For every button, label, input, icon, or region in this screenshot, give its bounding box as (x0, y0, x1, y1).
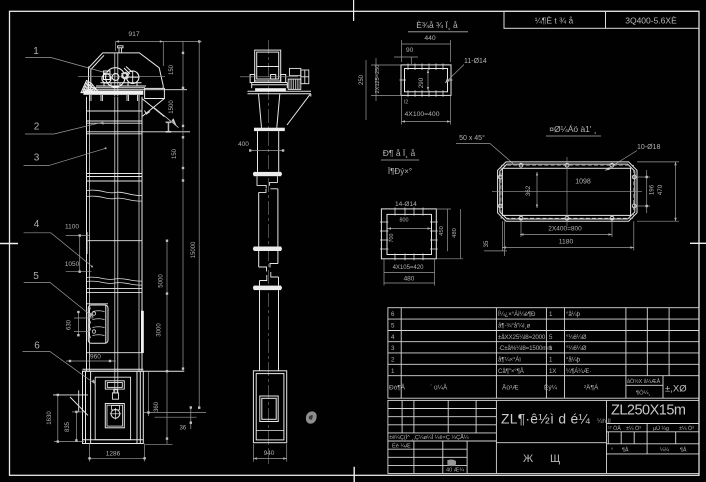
svg-text:å¶¼×°Áì: å¶¼×°Áì (498, 356, 521, 363)
svg-text:40 Æ¼: 40 Æ¼ (446, 468, 464, 474)
svg-text:1: 1 (33, 46, 39, 57)
svg-text:3Q400-5.6XÈ: 3Q400-5.6XÈ (625, 16, 677, 26)
svg-text:È¾å ¾ Ï¸ å: È¾å ¾ Ï¸ å (416, 20, 458, 30)
svg-text:1100: 1100 (65, 224, 79, 231)
svg-text:Í¼¿×°Áì¼è¶Ð: Í¼¿×°Áì¼è¶Ð (498, 311, 536, 318)
svg-text:·C±å%¼l8=1500mm: ·C±å%¼l8=1500mm (498, 345, 552, 352)
svg-text:²Ä¶Á: ²Ä¶Á (584, 383, 599, 392)
svg-text:14-Ø14: 14-Ø14 (395, 201, 417, 208)
svg-text:2X400=800: 2X400=800 (548, 226, 582, 233)
svg-text:2: 2 (34, 122, 40, 133)
svg-text:1X: 1X (549, 368, 556, 375)
svg-text:°: ° (611, 448, 613, 454)
svg-text:l2: l2 (404, 100, 408, 106)
svg-text:835: 835 (65, 421, 71, 432)
svg-text:196: 196 (649, 184, 656, 195)
svg-text:250: 250 (359, 74, 365, 85)
svg-text:1098: 1098 (575, 179, 591, 186)
svg-text:90: 90 (406, 47, 414, 54)
svg-text:11-Ø14: 11-Ø14 (464, 58, 487, 65)
svg-text:±¼ Ò³: ±¼ Ò³ (626, 425, 641, 432)
svg-text:¶Å: ¶Å (622, 447, 629, 454)
svg-text:400: 400 (238, 141, 249, 148)
svg-text:å¶-¾°å'¼ì¸ø: å¶-¾°å'¼ì¸ø (498, 323, 531, 330)
svg-text:3: 3 (34, 153, 40, 164)
svg-text:°å¼þ: °å¼þ (566, 311, 581, 318)
svg-text:5000: 5000 (159, 274, 165, 288)
svg-text:360: 360 (154, 401, 160, 412)
svg-text:4: 4 (34, 219, 40, 230)
svg-text:470: 470 (657, 184, 664, 195)
svg-text:¼h,ll: ¼h,ll (597, 418, 611, 425)
svg-text:5: 5 (33, 271, 39, 282)
svg-text:1050: 1050 (65, 261, 80, 268)
svg-text:¹² ÖÅ: ¹² ÖÅ (608, 425, 621, 432)
svg-text:°å¼þ: °å¼þ (566, 356, 581, 363)
svg-text:150: 150 (172, 148, 178, 159)
svg-text:Ж: Ж (523, 453, 533, 465)
svg-text:°¼6¼Ø: °¼6¼Ø (566, 345, 587, 352)
svg-text:917: 917 (128, 31, 140, 38)
svg-text:¼¼: ¼¼ (660, 448, 669, 454)
svg-text:1630: 1630 (47, 411, 53, 425)
svg-text:¶Å: ¶Å (680, 447, 687, 454)
svg-text:480: 480 (452, 228, 458, 238)
svg-text:960: 960 (90, 354, 101, 361)
svg-text:Ð¶ å Ï¸ å: Ð¶ å Ï¸ å (383, 148, 416, 158)
svg-text:10-Ø18: 10-Ø18 (637, 144, 660, 151)
svg-text:Щ: Щ (550, 453, 560, 465)
svg-text:±ê¼Ç(Ì^ ¸,Ç¼ø¼Î ¼ê×Ç ¼ÇÃ¼: ±ê¼Ç(Ì^ ¸,Ç¼ø¼Î ¼ê×Ç ¼ÇÃ¼ (389, 434, 469, 441)
svg-text:Cå¶"×°¶Å: Cå¶"×°¶Å (498, 368, 525, 375)
svg-text:630: 630 (67, 319, 73, 330)
svg-text:290: 290 (418, 77, 425, 88)
svg-text:Ãû³Æ: Ãû³Æ (502, 383, 519, 392)
svg-text:6: 6 (34, 341, 40, 352)
svg-text:µÚ ¼g: µÚ ¼g (653, 425, 669, 432)
svg-text:700: 700 (389, 234, 395, 243)
svg-text:450: 450 (439, 226, 445, 236)
svg-text:15000: 15000 (191, 241, 197, 258)
svg-text:440: 440 (424, 35, 436, 42)
svg-text:´ ú¼Å: ´ ú¼Å (430, 383, 448, 392)
svg-text:ZL¶·ê½ì d é¼: ZL¶·ê½ì d é¼ (501, 412, 590, 427)
svg-text:¼¶È t ¾ å: ¼¶È t ¾ å (535, 16, 574, 26)
svg-text:150: 150 (169, 64, 175, 75)
svg-text:35: 35 (484, 240, 490, 247)
svg-text:¶Ó¼¸: ¶Ó¼¸ (636, 390, 650, 397)
svg-text:50 x 45°: 50 x 45° (459, 134, 485, 142)
svg-text:1180: 1180 (559, 239, 574, 246)
svg-text:±¼ Ò³: ±¼ Ò³ (679, 425, 694, 432)
svg-text:±åXX25¼l8=2000: ±åXX25¼l8=2000 (498, 334, 546, 341)
svg-text:Éè ¼Æ: Éè ¼Æ (392, 443, 411, 450)
svg-text:800: 800 (400, 218, 409, 224)
svg-text:Ðò¶Å: Ðò¶Å (389, 383, 406, 392)
svg-text:±,XØ: ±,XØ (665, 384, 687, 395)
svg-text:3000: 3000 (157, 323, 163, 337)
svg-text:¼¶Á¼Æ·: ¼¶Á¼Æ· (566, 368, 591, 375)
svg-text:36: 36 (180, 426, 187, 432)
svg-text:1286: 1286 (106, 451, 121, 458)
svg-text:4X100=400: 4X100=400 (405, 111, 440, 118)
svg-text:¤Ø¼Áö à1' ¸: ¤Ø¼Áö à1' ¸ (549, 124, 596, 134)
svg-text:1500: 1500 (169, 100, 175, 114)
svg-text:Êý¼: Êý¼ (544, 383, 558, 392)
svg-text:362: 362 (525, 185, 532, 196)
svg-text:°¼6¼Ø: °¼6¼Ø (566, 334, 587, 341)
svg-text:åÒ½X å¼ÆÅ: åÒ½X å¼ÆÅ (627, 378, 661, 385)
svg-text:Ï¶Ðý×°: Ï¶Ðý×° (388, 167, 412, 176)
svg-text:480: 480 (404, 276, 415, 283)
svg-text:940: 940 (264, 450, 275, 457)
svg-text:2X125=250: 2X125=250 (375, 65, 381, 94)
svg-text:4X105=420: 4X105=420 (393, 265, 425, 271)
svg-text:ZL250X15m: ZL250X15m (611, 403, 686, 419)
